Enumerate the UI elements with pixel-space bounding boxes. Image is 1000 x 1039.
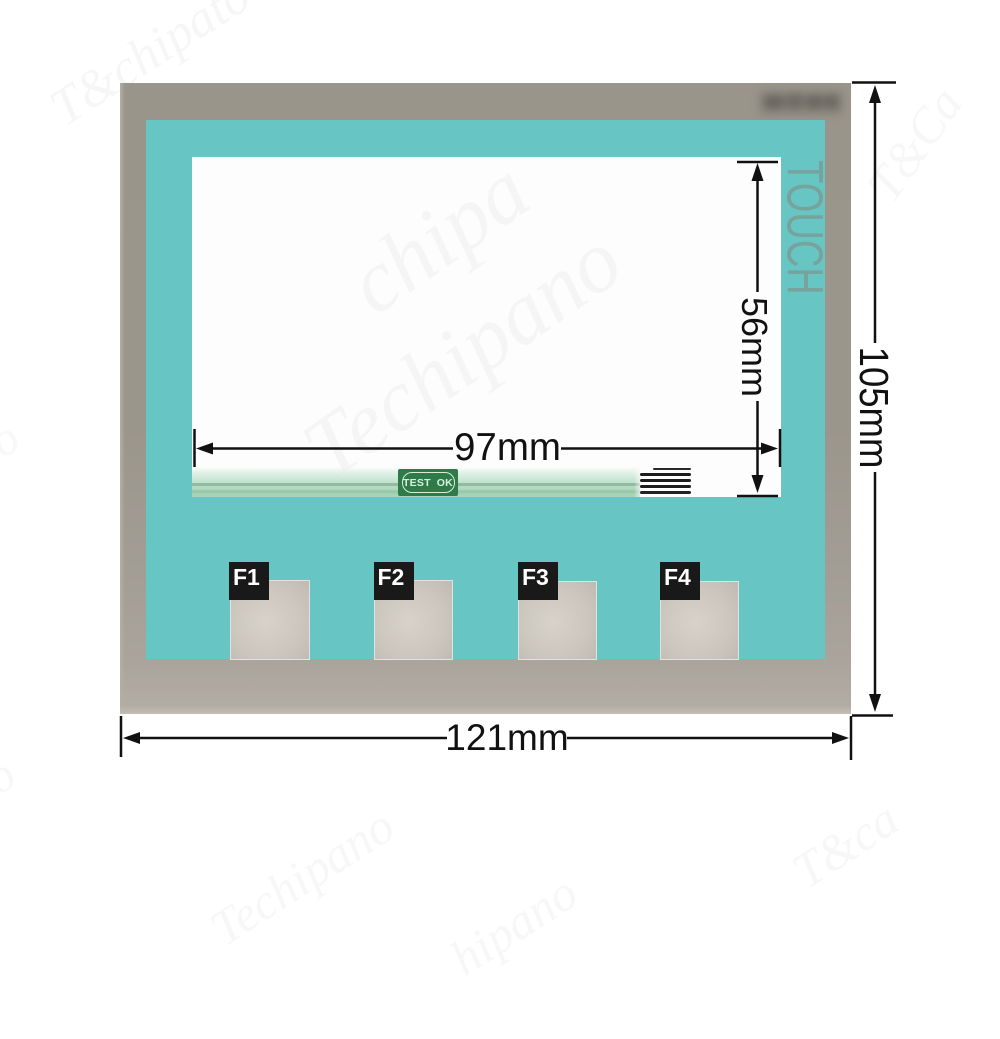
svg-text:97mm: 97mm <box>454 426 561 469</box>
svg-text:56mm: 56mm <box>734 297 775 397</box>
svg-text:105mm: 105mm <box>850 347 895 469</box>
svg-text:121mm: 121mm <box>445 717 568 758</box>
